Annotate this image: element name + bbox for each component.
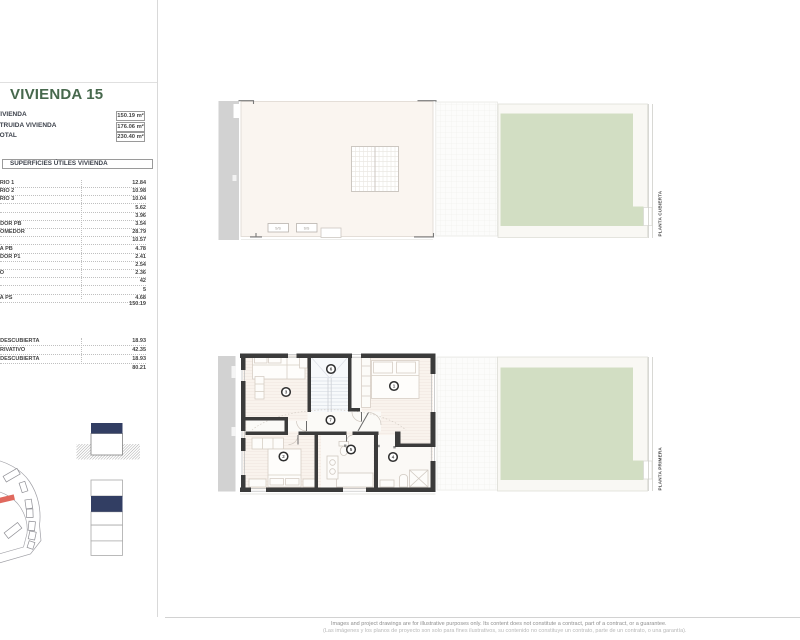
svg-text:S/S: S/S <box>275 227 281 231</box>
svg-text:PLANTA CUBIERTA: PLANTA CUBIERTA <box>658 190 663 236</box>
svg-text:S/S: S/S <box>304 227 310 231</box>
svg-text:PLANTA PRIMERA: PLANTA PRIMERA <box>658 447 663 491</box>
